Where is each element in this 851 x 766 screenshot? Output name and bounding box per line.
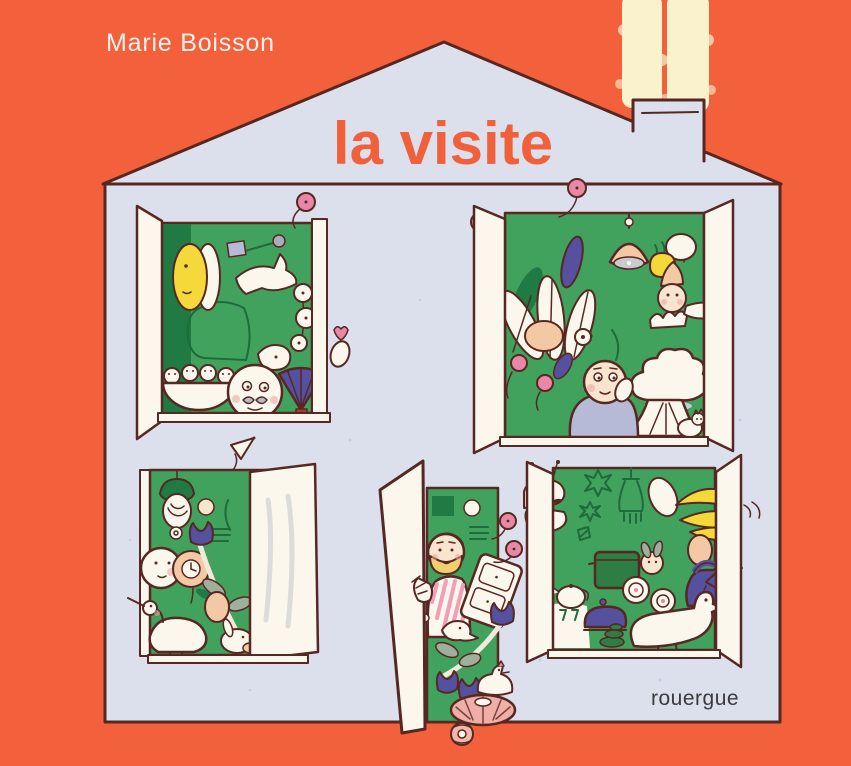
- scallop-collar: [650, 312, 687, 329]
- window-frame: [312, 219, 327, 417]
- shutter-right: [704, 200, 733, 451]
- book-cover: Marie Boisson la visite rouergue: [0, 0, 851, 766]
- shutter-left: [474, 206, 505, 453]
- yellow-moon-face: [173, 244, 207, 310]
- pink-flower: [451, 723, 473, 745]
- window-sill: [548, 650, 720, 658]
- window-sill: [148, 655, 308, 663]
- shutter-left: [137, 206, 162, 439]
- window-top-right: [471, 179, 733, 453]
- shutter-right: [716, 455, 741, 667]
- window-bottom-left: [128, 437, 318, 664]
- shutter-left: [527, 462, 553, 662]
- author-name: Marie Boisson: [106, 29, 275, 58]
- window-bottom-right: [524, 455, 760, 667]
- mustache-creature: [228, 365, 282, 419]
- publisher-name: rouergue: [651, 687, 739, 711]
- shutter-right: [250, 464, 318, 660]
- peach-fruit: [525, 321, 563, 351]
- book-title: la visite: [333, 109, 553, 178]
- gray-dot: [273, 235, 285, 247]
- chimney-smoke: [615, 0, 716, 112]
- window-sill: [158, 413, 330, 422]
- window-sill: [500, 437, 708, 446]
- window-top-left: [137, 193, 353, 439]
- lilac-frame: [227, 241, 246, 257]
- shaded-panel: [432, 496, 454, 516]
- pink-pouf: [451, 695, 515, 725]
- peach-dot: [198, 499, 214, 515]
- white-flower: [464, 500, 480, 516]
- peach-bud: [205, 592, 229, 622]
